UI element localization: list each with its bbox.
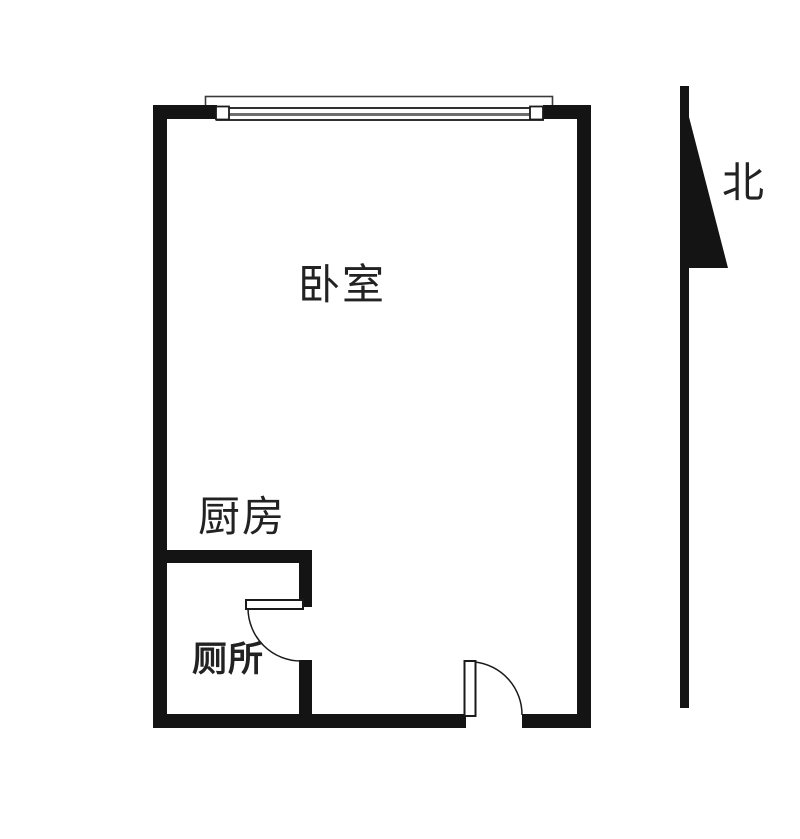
toilet-door-panel [246, 600, 303, 609]
wall-left [153, 105, 167, 728]
room-label-bedroom: 卧室 [298, 262, 386, 309]
wall-toilet-right-upper [299, 550, 312, 607]
entry-door [465, 661, 523, 716]
floorplan-drawing: 卧室 厨房 厕所 北 [0, 0, 800, 839]
room-label-kitchen: 厨房 [198, 495, 286, 541]
wall-right [577, 105, 591, 728]
wall-bottom-right-segment [522, 714, 591, 728]
window-end-cap-left [216, 107, 229, 120]
entry-door-panel [465, 661, 476, 716]
north-arrow-head [681, 86, 728, 268]
window-end-cap-right [530, 107, 543, 120]
wall-toilet-top [153, 550, 312, 563]
window [216, 107, 543, 121]
walls [153, 105, 591, 728]
wall-toilet-right-lower [299, 660, 312, 714]
wall-bottom-left-segment [153, 714, 466, 728]
compass-north-label: 北 [722, 161, 764, 207]
floorplan-canvas: 卧室 厨房 厕所 北 [0, 0, 800, 839]
room-label-toilet: 厕所 [192, 640, 264, 679]
north-arrow-icon [680, 86, 728, 708]
entry-door-swing-arc [475, 662, 522, 715]
